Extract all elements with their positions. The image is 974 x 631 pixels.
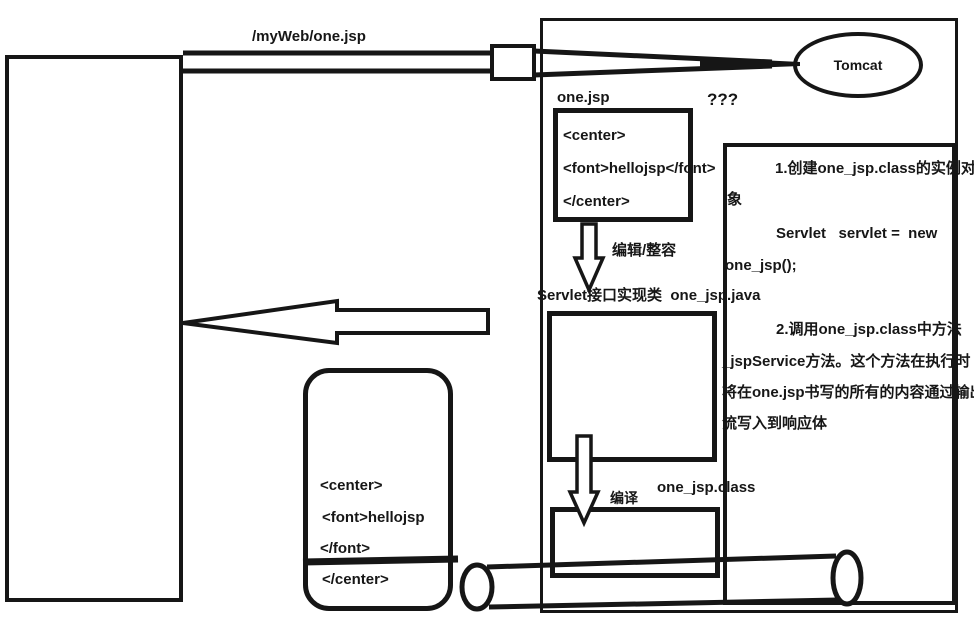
class-file-label: one_jsp.class <box>657 478 755 498</box>
note-line: one_jsp(); <box>725 256 797 276</box>
response-line: <font>hellojsp <box>322 508 425 528</box>
response-line: </font> <box>320 539 370 559</box>
tomcat-ellipse: Tomcat <box>793 32 923 98</box>
jsp-source-line: <font>hellojsp</font> <box>563 159 716 179</box>
one-jsp-java-box <box>547 311 717 462</box>
note-line: Servlet servlet = new <box>776 224 937 244</box>
note-line: 1.创建one_jsp.class的实例对 <box>775 159 974 179</box>
note-line: 象 <box>727 190 742 210</box>
servlet-class-caption: Servlet接口实现类 one_jsp.java <box>537 286 760 306</box>
note-line: _jspService方法。这个方法在执行时 <box>722 352 970 372</box>
jsp-file-title: one.jsp <box>557 88 610 108</box>
jsp-source-line: <center> <box>563 126 626 146</box>
jsp-execution-diagram: Tomcat /myWeb/one.jsp one.jsp ??? 编 <box>0 0 974 631</box>
one-jsp-class-box <box>550 507 720 578</box>
browser-window-box <box>5 55 183 602</box>
request-url-label: /myWeb/one.jsp <box>252 27 366 47</box>
translate-step-label: 编辑/整容 <box>612 241 676 261</box>
response-arrow <box>183 301 488 343</box>
pipe-left-end <box>462 565 492 609</box>
response-line: <center> <box>320 476 383 496</box>
tomcat-label: Tomcat <box>834 55 883 75</box>
execution-note-panel <box>723 143 956 605</box>
response-line: </center> <box>322 570 389 590</box>
question-marks-label: ??? <box>707 90 738 110</box>
compile-step-label: 编译 <box>610 488 638 508</box>
note-line: 2.调用one_jsp.class中方法 <box>776 320 962 340</box>
note-line: 将在one.jsp书写的所有的内容通过输出 <box>722 383 974 403</box>
note-line: 流写入到响应体 <box>722 414 827 434</box>
jsp-source-line: </center> <box>563 192 630 212</box>
